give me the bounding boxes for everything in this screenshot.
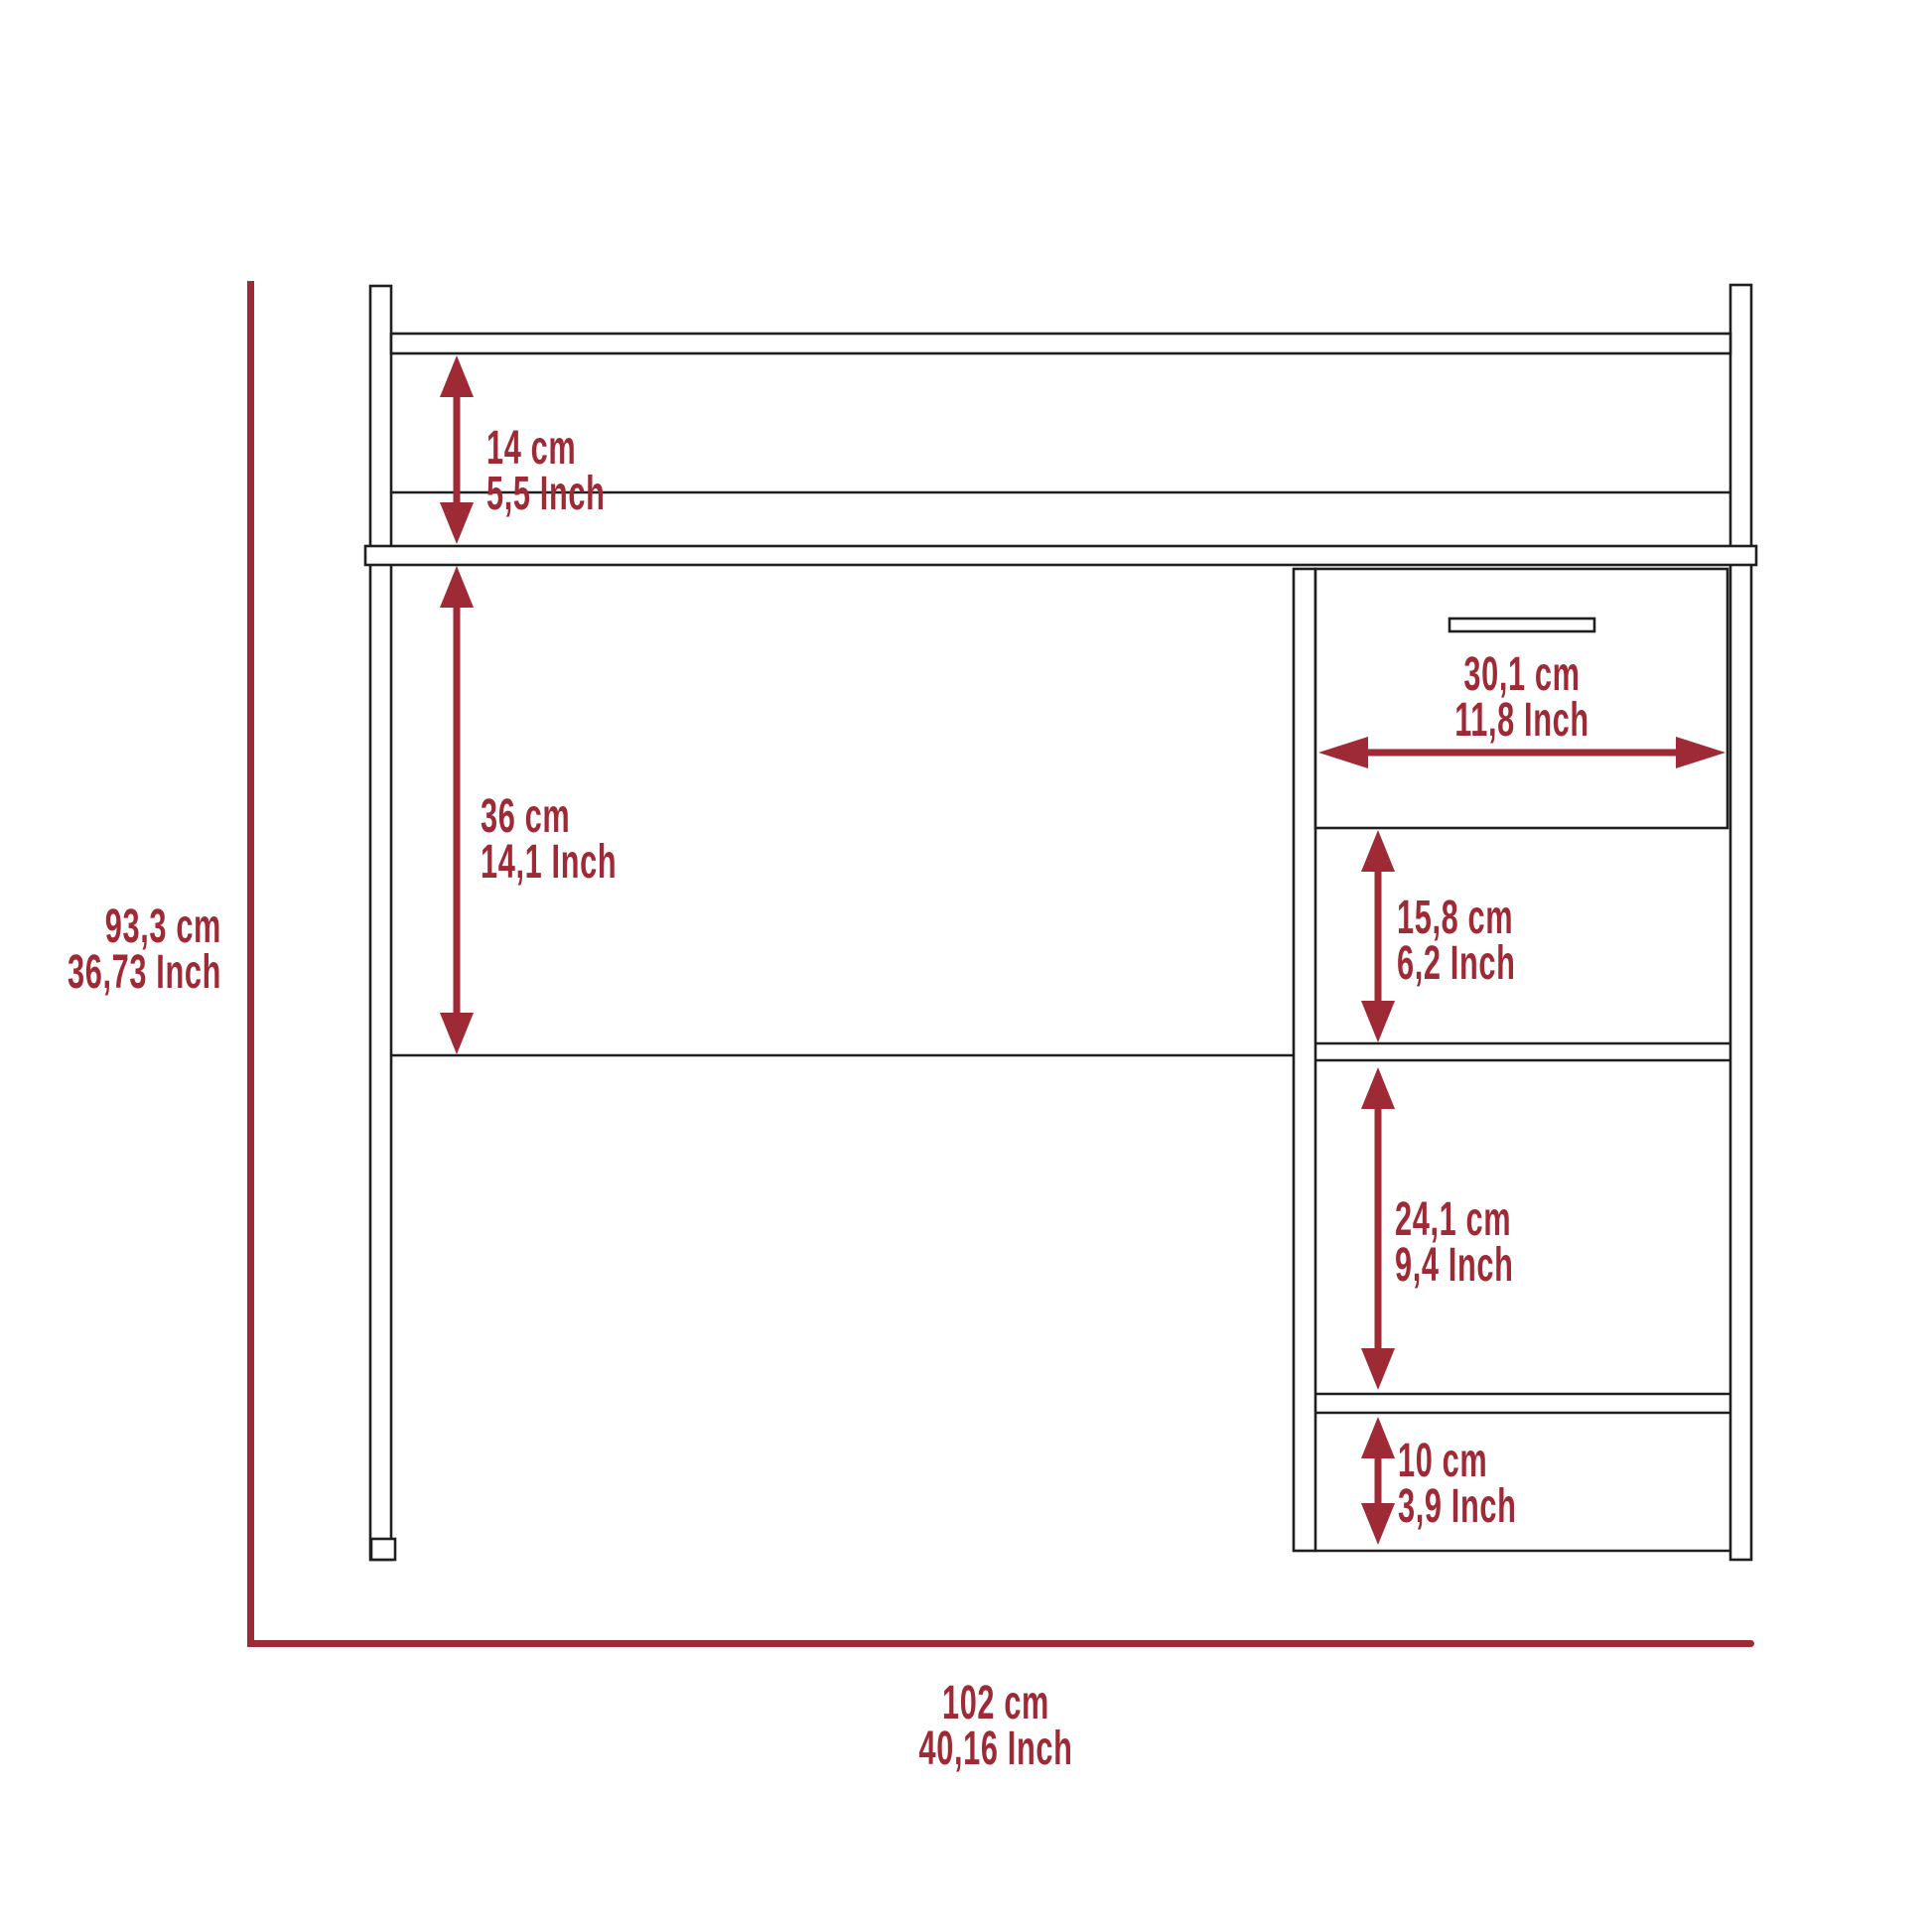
arrow-hutch-clearance (440, 355, 474, 544)
dim-value-cm: 15,8 cm (1397, 896, 1516, 941)
dim-value-cm: 24,1 cm (1395, 1197, 1514, 1243)
left-foot (371, 1539, 395, 1560)
arrow-middle-shelf-space (1361, 1067, 1395, 1390)
drawer-handle (1449, 619, 1594, 631)
dim-value-inch: 40,16 Inch (869, 1726, 1123, 1772)
dim-label-middle-shelf-space: 24,1 cm 9,4 Inch (1395, 1197, 1514, 1289)
desk-top-surface (365, 546, 1756, 565)
dim-label-drawer-width: 30,1 cm 11,8 Inch (1395, 652, 1649, 744)
arrow-bottom-shelf-space (1361, 1417, 1395, 1545)
dim-label-overall-height: 93,3 cm 36,73 Inch (0, 904, 221, 996)
dim-value-cm: 30,1 cm (1395, 652, 1649, 698)
dim-label-desk-clearance: 36 cm 14,1 Inch (481, 794, 617, 886)
measurement-axis (247, 281, 1754, 1647)
dim-label-bottom-shelf-space: 10 cm 3,9 Inch (1398, 1439, 1517, 1530)
dim-value-inch: 3,9 Inch (1398, 1484, 1517, 1530)
dim-value-cm: 36 cm (481, 794, 617, 840)
dim-value-inch: 36,73 Inch (0, 950, 221, 996)
desk-line-drawing (0, 0, 1932, 1932)
arrow-upper-shelf-space (1361, 830, 1395, 1042)
dim-value-cm: 10 cm (1398, 1439, 1517, 1484)
cabinet-left-panel (1294, 569, 1315, 1551)
dim-value-cm: 93,3 cm (0, 904, 221, 950)
dim-value-inch: 6,2 Inch (1397, 941, 1516, 987)
hutch-top-shelf (391, 334, 1730, 353)
dimension-diagram-page: 14 cm 5,5 Inch 36 cm 14,1 Inch 93,3 cm 3… (0, 0, 1932, 1932)
width-axis-line (247, 1640, 1754, 1647)
dim-label-overall-width: 102 cm 40,16 Inch (869, 1681, 1123, 1772)
right-leg-post (1730, 285, 1751, 1560)
dim-label-upper-shelf-space: 15,8 cm 6,2 Inch (1397, 896, 1516, 987)
dimension-arrows (440, 355, 1725, 1545)
dim-value-inch: 11,8 Inch (1395, 698, 1649, 744)
arrow-desk-clearance (440, 566, 474, 1054)
dim-label-hutch-clearance: 14 cm 5,5 Inch (486, 426, 606, 517)
dim-value-cm: 102 cm (869, 1681, 1123, 1726)
height-axis-line (247, 281, 254, 1647)
dim-value-inch: 5,5 Inch (486, 472, 606, 517)
dim-value-inch: 14,1 Inch (481, 840, 617, 886)
left-leg-post (370, 286, 391, 1560)
dim-value-cm: 14 cm (486, 426, 606, 472)
dim-value-inch: 9,4 Inch (1395, 1243, 1514, 1289)
